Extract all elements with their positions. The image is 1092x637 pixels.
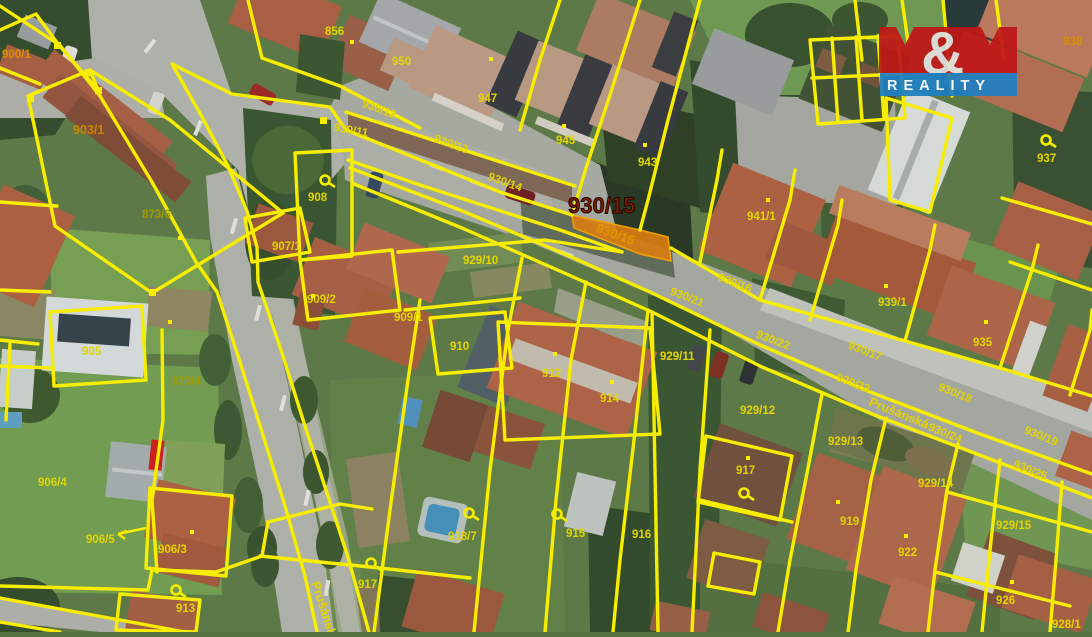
svg-text:930/15: 930/15 [568, 193, 635, 218]
svg-text:918/7: 918/7 [448, 531, 477, 543]
svg-text:935: 935 [973, 337, 993, 349]
svg-text:950: 950 [392, 56, 411, 68]
svg-text:929/10: 929/10 [463, 255, 498, 267]
svg-text:929/15: 929/15 [996, 520, 1032, 532]
svg-text:929/12: 929/12 [740, 405, 775, 417]
svg-text:873/6: 873/6 [142, 209, 171, 221]
svg-text:912: 912 [542, 368, 561, 380]
svg-text:922: 922 [898, 547, 917, 559]
svg-text:943: 943 [638, 157, 657, 169]
svg-text:906/3: 906/3 [158, 544, 187, 556]
svg-text:900/1: 900/1 [2, 49, 31, 61]
svg-text:873/4: 873/4 [172, 376, 201, 388]
svg-text:937: 937 [1037, 153, 1056, 165]
svg-text:906/4: 906/4 [38, 477, 67, 489]
svg-text:945: 945 [556, 135, 576, 147]
svg-text:908: 908 [308, 192, 328, 204]
svg-text:907/1: 907/1 [272, 241, 301, 253]
svg-text:915: 915 [566, 528, 586, 540]
svg-text:929/11: 929/11 [660, 351, 695, 363]
svg-text:926: 926 [996, 595, 1015, 607]
svg-text:913: 913 [176, 603, 195, 615]
svg-text:914: 914 [600, 393, 620, 405]
svg-text:906/5: 906/5 [86, 534, 115, 546]
svg-text:941/1: 941/1 [747, 211, 776, 223]
svg-text:903/1: 903/1 [73, 123, 104, 137]
svg-text:929/14: 929/14 [918, 478, 954, 490]
svg-text:REALITY: REALITY [887, 78, 991, 94]
svg-text:919: 919 [840, 516, 859, 528]
svg-text:910: 910 [450, 341, 469, 353]
svg-text:905: 905 [82, 346, 102, 358]
svg-text:917: 917 [358, 579, 377, 591]
svg-text:916: 916 [632, 529, 651, 541]
svg-text:929/13: 929/13 [828, 436, 863, 448]
svg-text:947: 947 [478, 93, 497, 105]
svg-text:917: 917 [736, 465, 755, 477]
svg-text:856: 856 [325, 26, 344, 38]
svg-text:938: 938 [1063, 36, 1083, 48]
svg-text:928/1: 928/1 [1052, 619, 1081, 631]
svg-text:909/1: 909/1 [394, 312, 423, 324]
svg-text:939/1: 939/1 [878, 297, 907, 309]
